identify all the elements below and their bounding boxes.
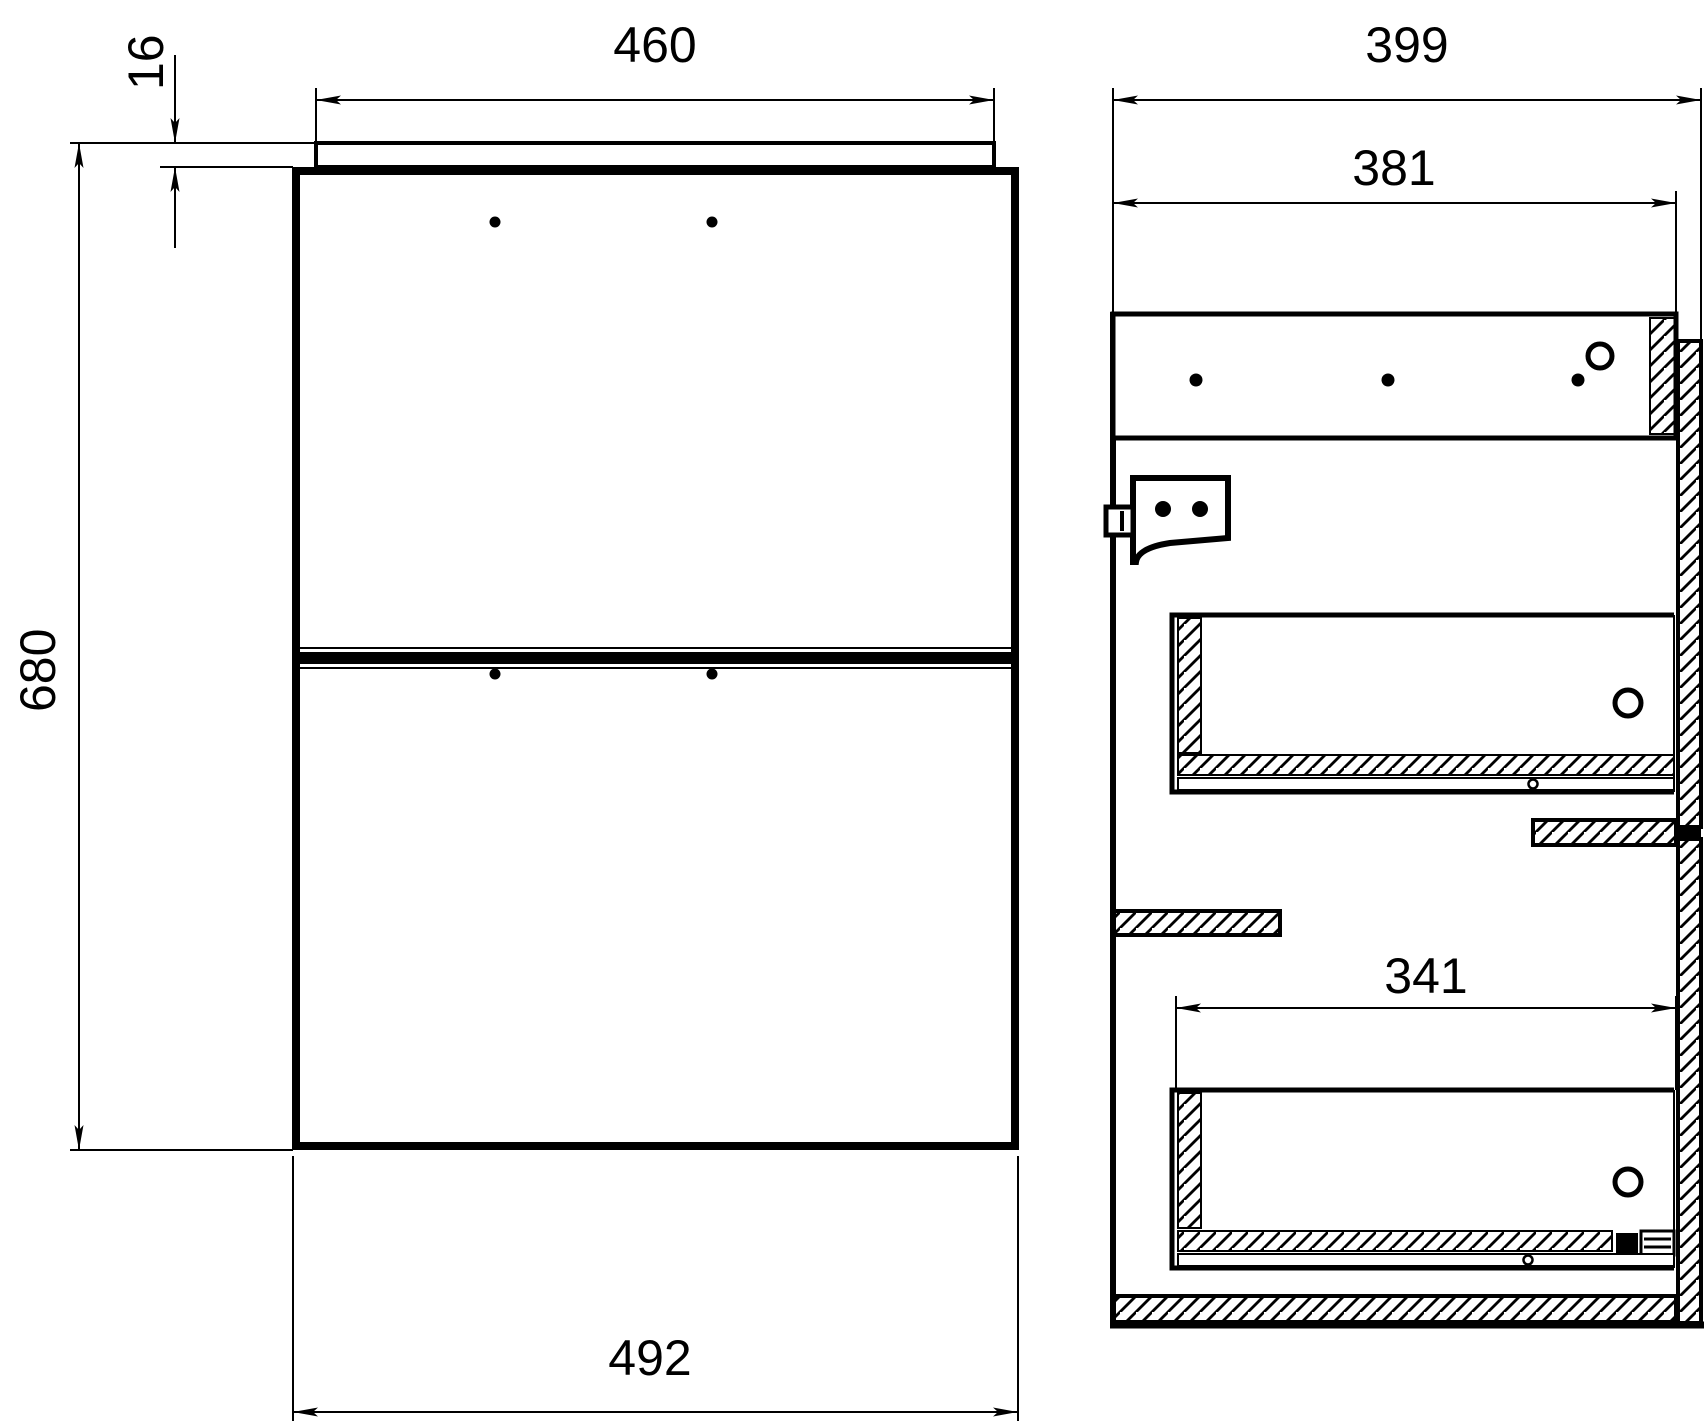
side-top-drawer-slide-rail [1178, 778, 1674, 790]
side-bracket-dot-2 [1192, 501, 1208, 517]
dim-label-total-depth: 399 [1365, 17, 1448, 73]
side-bottom-panel [1113, 1296, 1676, 1322]
technical-drawing-canvas: 460 16 680 492 399 381 341 [0, 0, 1705, 1427]
front-upper-drawer-hole-left [490, 217, 501, 228]
side-bracket-dot-1 [1155, 501, 1171, 517]
dim-label-body-width: 492 [608, 1330, 691, 1386]
side-bottom-drawer-slide-hole [1524, 1256, 1533, 1265]
side-rail-screw-dot-2 [1382, 374, 1395, 387]
side-top-drawer-slide-hole [1529, 780, 1538, 789]
front-divider-gap [297, 652, 1014, 664]
front-lower-drawer-hole-right [707, 669, 718, 680]
side-rail-cam-hole [1588, 344, 1612, 368]
side-bottom-drawer-back-panel [1178, 1093, 1201, 1228]
dim-label-top-panel-thickness: 16 [118, 34, 174, 90]
side-back-rail [1113, 911, 1280, 935]
side-top-drawer-front-section [1678, 341, 1701, 827]
side-bottom-drawer-slide-rail [1178, 1254, 1674, 1266]
side-rail-screw-dot-1 [1190, 374, 1203, 387]
front-upper-drawer-hole-right [707, 217, 718, 228]
side-bracket-hook [1106, 507, 1133, 535]
side-top-drawer-cam-hole [1615, 690, 1641, 716]
dim-label-total-height: 680 [10, 629, 66, 712]
side-bottom-drawer-slide-block [1616, 1233, 1638, 1255]
cabinet-dimension-drawing: 460 16 680 492 399 381 341 [0, 0, 1705, 1427]
side-middle-front-rail [1533, 820, 1676, 845]
dim-label-body-depth: 381 [1352, 140, 1435, 196]
side-top-drawer-bottom-panel [1178, 755, 1674, 775]
side-top-drawer-back-panel [1178, 618, 1201, 753]
side-wall-bracket [1106, 478, 1228, 562]
side-top-rail-front-section [1650, 318, 1676, 434]
front-top-panel [316, 143, 994, 167]
dim-label-drawer-depth: 341 [1384, 948, 1467, 1004]
side-bottom-drawer-bottom-panel [1178, 1231, 1612, 1251]
side-bottom-drawer-cam-hole [1615, 1169, 1641, 1195]
side-top-drawer [1172, 615, 1674, 792]
side-bottom-drawer [1172, 1090, 1674, 1268]
side-bottom-drawer-slide-end [1641, 1231, 1674, 1255]
side-section-view [1106, 312, 1704, 1325]
side-rail-screw-dot-3 [1572, 374, 1585, 387]
side-bottom-drawer-front-section [1678, 839, 1701, 1323]
front-lower-drawer-hole-left [490, 669, 501, 680]
dim-label-top-panel-width: 460 [613, 17, 696, 73]
front-view [296, 143, 1015, 1146]
